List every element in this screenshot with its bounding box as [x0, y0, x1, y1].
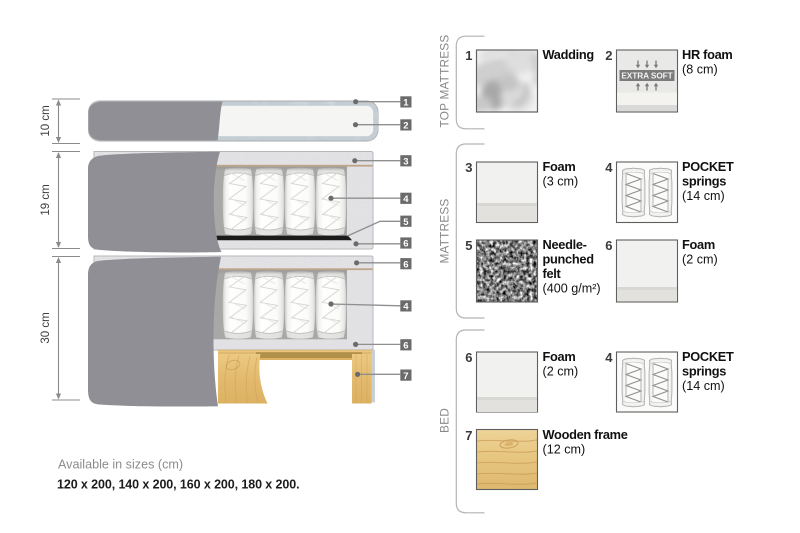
- svg-text:(8 cm): (8 cm): [682, 62, 718, 76]
- svg-text:4: 4: [403, 194, 409, 205]
- svg-text:EXTRA SOFT: EXTRA SOFT: [621, 71, 672, 81]
- svg-text:springs: springs: [682, 363, 726, 378]
- svg-text:7: 7: [403, 371, 408, 382]
- svg-text:BED: BED: [438, 408, 452, 433]
- svg-text:30 cm: 30 cm: [40, 312, 52, 343]
- svg-text:(14 cm): (14 cm): [682, 379, 725, 393]
- svg-text:springs: springs: [682, 173, 726, 188]
- svg-text:3: 3: [465, 160, 472, 175]
- svg-text:Needle-: Needle-: [543, 237, 587, 252]
- svg-text:(14 cm): (14 cm): [682, 189, 725, 203]
- svg-text:(400 g/m²): (400 g/m²): [543, 281, 601, 295]
- svg-text:Wadding: Wadding: [543, 47, 594, 62]
- svg-text:MATTRESS: MATTRESS: [438, 199, 452, 264]
- svg-text:Foam: Foam: [543, 159, 576, 174]
- svg-text:6: 6: [605, 238, 612, 253]
- svg-text:Available in sizes (cm): Available in sizes (cm): [58, 458, 183, 472]
- svg-text:(3 cm): (3 cm): [543, 174, 579, 188]
- svg-text:(2 cm): (2 cm): [682, 252, 718, 266]
- svg-text:6: 6: [465, 350, 472, 365]
- svg-text:punched: punched: [543, 251, 594, 266]
- svg-text:(12 cm): (12 cm): [543, 442, 586, 456]
- svg-text:POCKET: POCKET: [682, 349, 734, 364]
- svg-text:5: 5: [403, 217, 409, 228]
- svg-text:4: 4: [605, 350, 613, 365]
- svg-text:10 cm: 10 cm: [40, 105, 52, 136]
- svg-text:120 x 200, 140 x 200, 160 x 20: 120 x 200, 140 x 200, 160 x 200, 180 x 2…: [57, 478, 299, 492]
- svg-text:HR foam: HR foam: [682, 47, 733, 62]
- svg-text:19 cm: 19 cm: [40, 184, 52, 215]
- svg-text:6: 6: [403, 259, 408, 270]
- svg-text:2: 2: [403, 121, 408, 132]
- svg-text:1: 1: [403, 98, 409, 109]
- svg-text:Foam: Foam: [543, 349, 576, 364]
- svg-text:4: 4: [605, 160, 613, 175]
- svg-text:4: 4: [403, 302, 409, 313]
- svg-text:(2 cm): (2 cm): [543, 364, 579, 378]
- svg-text:Foam: Foam: [682, 237, 715, 252]
- svg-text:6: 6: [403, 341, 408, 352]
- svg-text:7: 7: [465, 428, 472, 443]
- svg-text:1: 1: [465, 48, 472, 63]
- svg-text:felt: felt: [543, 266, 562, 281]
- svg-text:5: 5: [465, 238, 472, 253]
- svg-text:2: 2: [605, 48, 612, 63]
- svg-text:3: 3: [403, 157, 408, 168]
- svg-text:6: 6: [403, 239, 408, 250]
- svg-text:TOP MATTRESS: TOP MATTRESS: [438, 35, 452, 128]
- svg-text:Wooden frame: Wooden frame: [543, 427, 628, 442]
- svg-text:POCKET: POCKET: [682, 159, 734, 174]
